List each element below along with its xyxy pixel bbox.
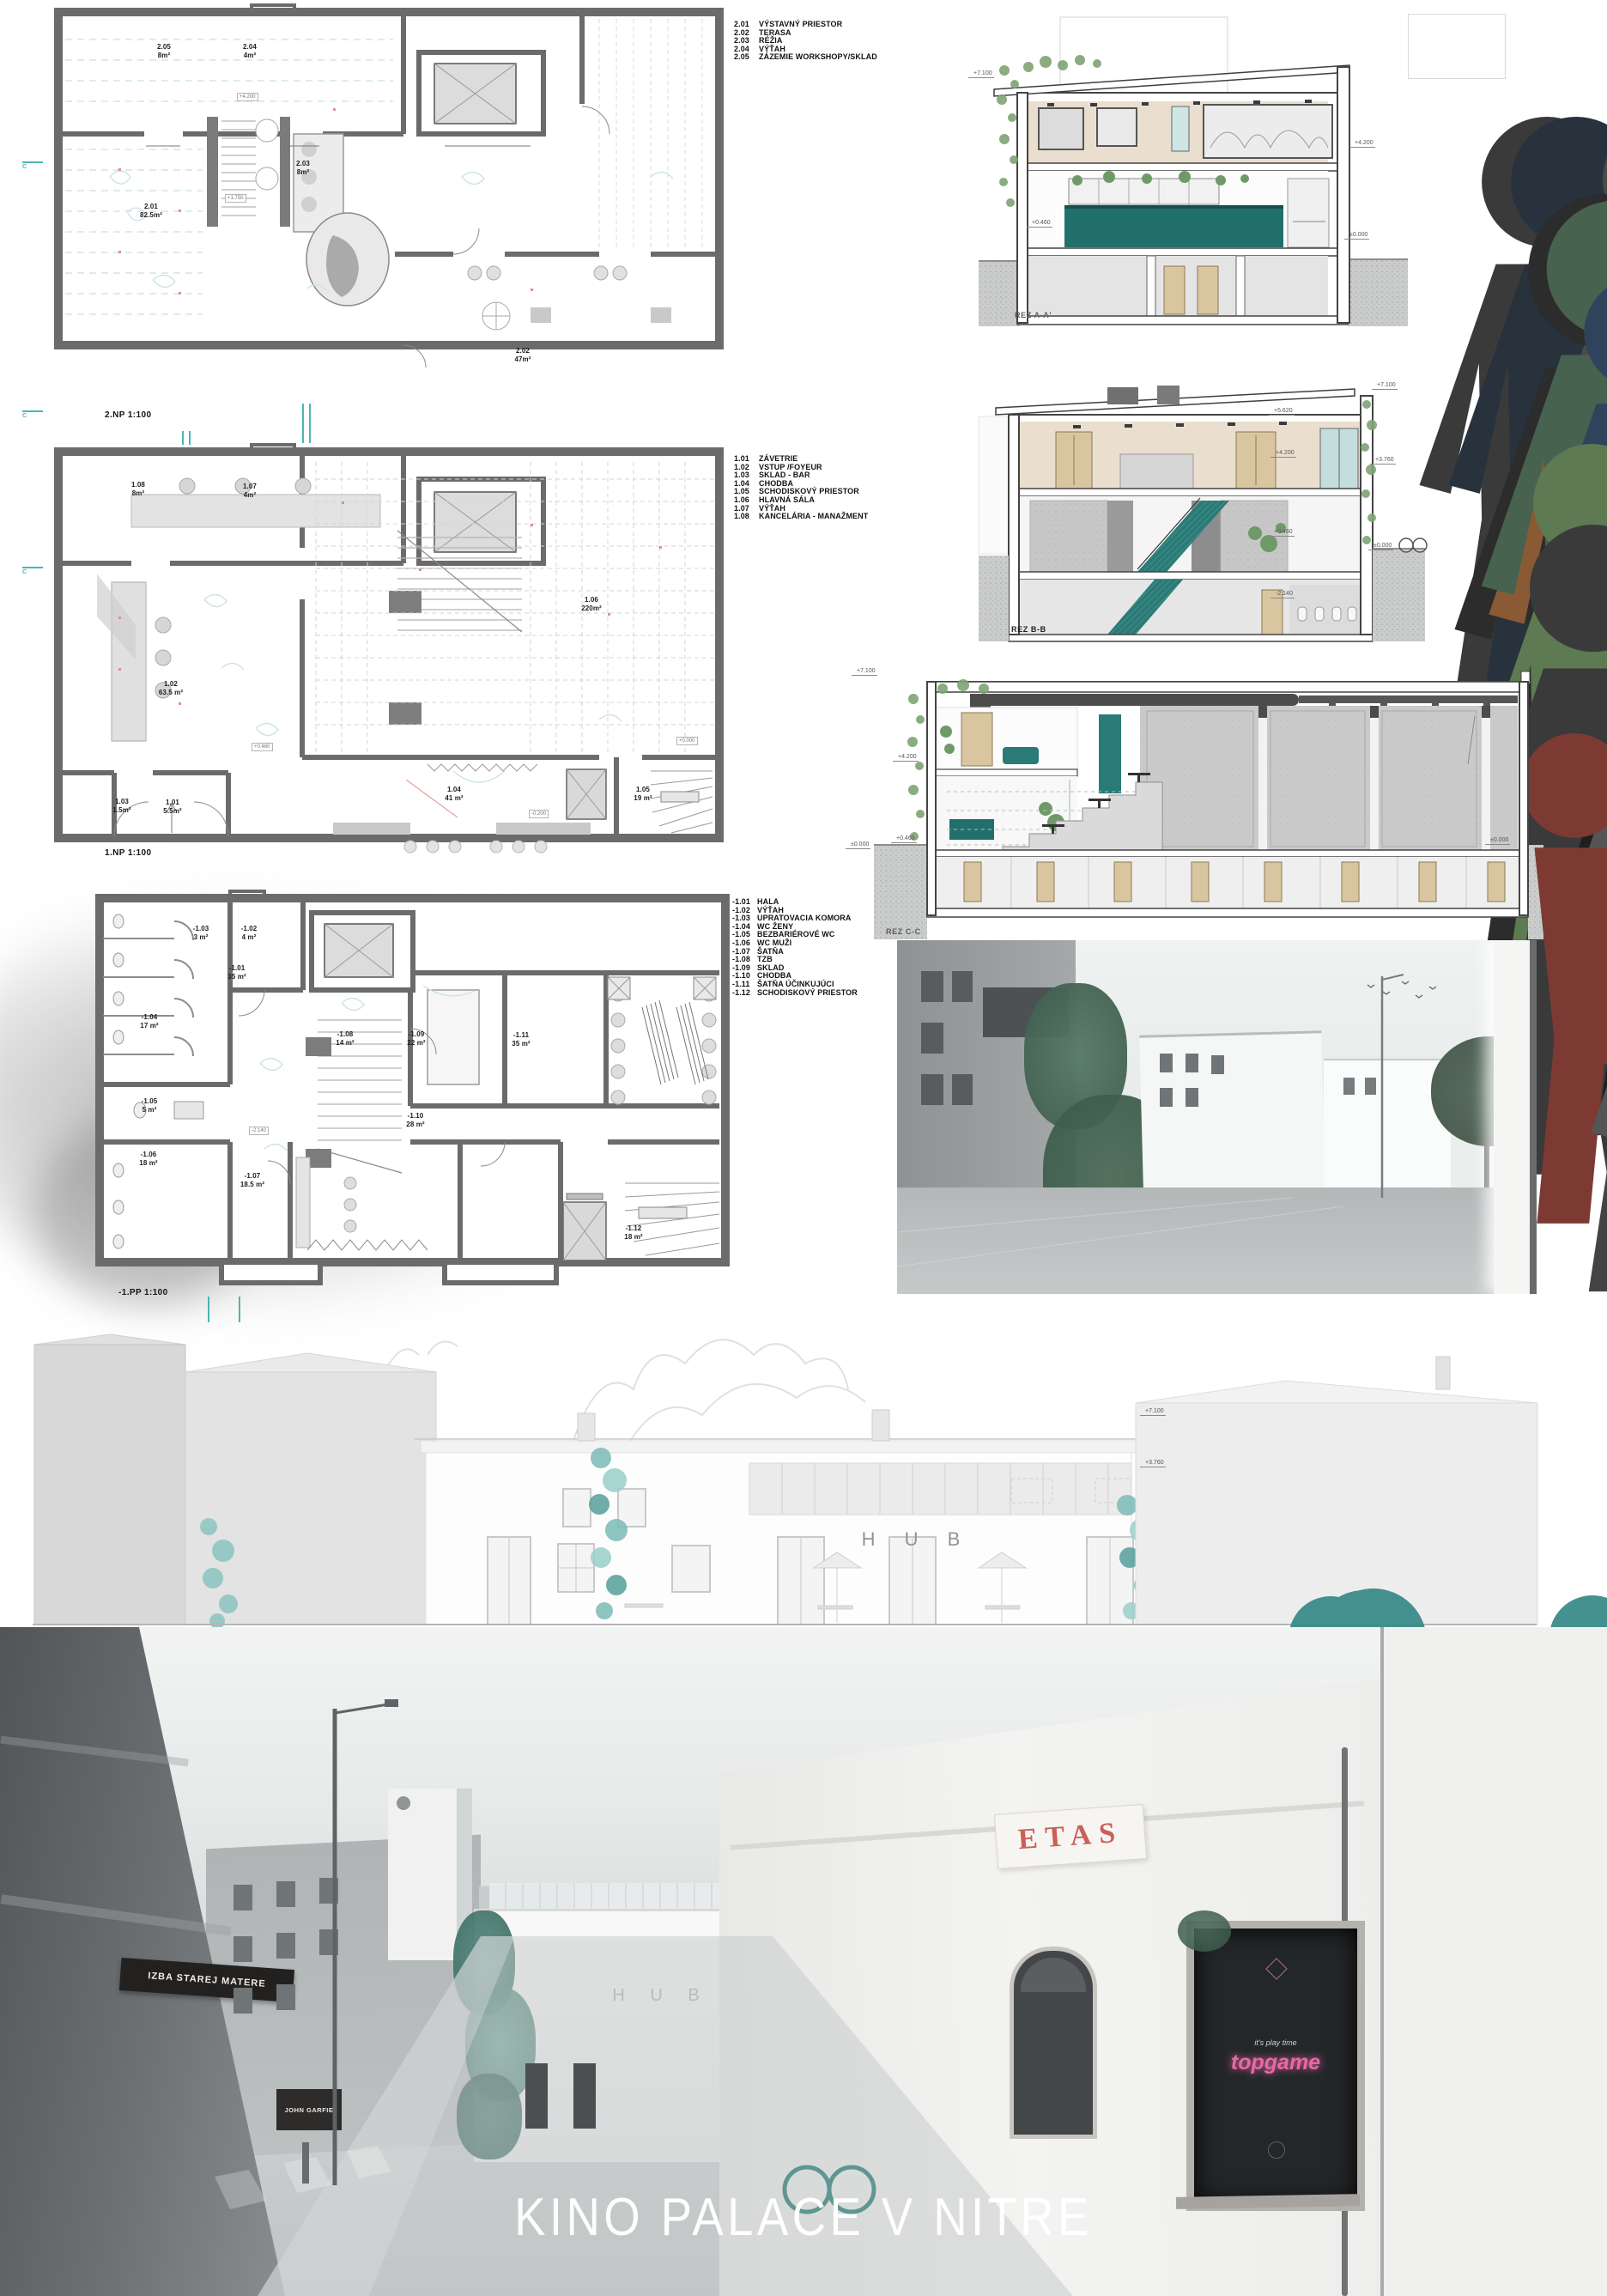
slab bbox=[1009, 572, 1373, 580]
foundation-slab bbox=[1009, 635, 1373, 641]
gable bbox=[34, 1334, 185, 1345]
legend-label: VÝŤAH bbox=[757, 906, 784, 914]
bollards bbox=[404, 841, 547, 853]
legend-label: TZB bbox=[757, 955, 773, 963]
level-mark: -0.200 bbox=[529, 810, 549, 818]
legend-row: 2.01VÝSTAVNÝ PRIESTOR bbox=[734, 21, 877, 29]
level-mark: +7.100 bbox=[852, 668, 877, 676]
chimney bbox=[872, 1410, 889, 1441]
column bbox=[256, 167, 278, 190]
legend-row: 2.02TERASA bbox=[734, 29, 877, 38]
legend-label: BEZBARIÉROVÉ WC bbox=[757, 930, 835, 938]
glass-band bbox=[749, 1463, 1131, 1515]
cut-line bbox=[189, 431, 191, 445]
left-wall bbox=[1017, 93, 1028, 323]
gable bbox=[1136, 1381, 1537, 1403]
teal-sofa bbox=[1003, 747, 1039, 764]
level-mark: +0.460 bbox=[891, 835, 917, 843]
section-cut-marker: C bbox=[22, 410, 43, 419]
street-elevation bbox=[24, 1321, 1537, 1640]
gray-building-b bbox=[185, 1372, 436, 1625]
room-label: 2.0247m² bbox=[498, 347, 548, 363]
wood-door bbox=[1164, 266, 1185, 314]
room-label: -1.1135 m² bbox=[496, 1031, 546, 1048]
roof bbox=[994, 65, 1349, 96]
level-mark: +0.000 bbox=[676, 737, 698, 745]
ground bbox=[979, 261, 1020, 326]
slab bbox=[927, 850, 1528, 857]
curb-lines bbox=[897, 1198, 1343, 1266]
room-label: 1.0441 m² bbox=[429, 786, 479, 802]
roof-slab bbox=[927, 682, 1528, 692]
legend-row: -1.09SKLAD bbox=[732, 964, 858, 973]
street-ground bbox=[1373, 549, 1425, 641]
room-label: 2.044m² bbox=[225, 43, 275, 59]
legend-row: -1.03UPRATOVACIA KOMORA bbox=[732, 914, 858, 923]
level-mark: +4.200 bbox=[1349, 140, 1375, 148]
legend-row: 1.03SKLAD - BAR bbox=[734, 471, 868, 480]
legend-label: SCHODISKOVÝ PRIESTOR bbox=[759, 487, 859, 495]
legend-row: -1.07ŠATŇA bbox=[732, 948, 858, 957]
legend-label: ŠATŇA bbox=[757, 947, 784, 956]
level-mark: +0.460 bbox=[1027, 220, 1052, 228]
artwork bbox=[1097, 108, 1137, 146]
basement-wall bbox=[1147, 256, 1155, 316]
context-building-outline bbox=[1408, 14, 1506, 79]
cut-line bbox=[309, 404, 311, 443]
row-windows bbox=[233, 1878, 338, 2014]
right-wall bbox=[1519, 682, 1528, 915]
level-mark: +0.460 bbox=[1269, 529, 1295, 537]
gray-building-a bbox=[34, 1345, 185, 1625]
legend-label: WC MUŽI bbox=[757, 938, 791, 947]
ground bbox=[1348, 259, 1408, 326]
legend-label: SKLAD - BAR bbox=[759, 471, 810, 479]
legend-row: -1.01HALA bbox=[732, 898, 858, 907]
satellite-dish bbox=[397, 1796, 410, 1810]
level-mark: -2.140 bbox=[1270, 591, 1295, 598]
room-label: 2.058m² bbox=[139, 43, 189, 59]
second-elevator-icon bbox=[567, 769, 606, 819]
plan-2np-scale-label: 2.NP 1:100 bbox=[105, 410, 151, 420]
chimney bbox=[1436, 1357, 1450, 1389]
legend-row: 2.03RÉŽIA bbox=[734, 37, 877, 46]
room-label: -1.0618 m² bbox=[124, 1151, 173, 1167]
artwork-large bbox=[1204, 105, 1332, 158]
legend-row: 1.06HLAVNÁ SÁLA bbox=[734, 496, 868, 505]
window bbox=[1172, 106, 1189, 151]
duct-thin bbox=[1299, 695, 1518, 703]
elevator-icon bbox=[312, 913, 413, 990]
photo-overlay bbox=[897, 940, 1537, 1294]
level-mark: +7.100 bbox=[968, 70, 994, 78]
legend-label: ŠATŇA ÚČINKUJÚCI bbox=[757, 980, 834, 988]
section-b-label: REZ B-B bbox=[1011, 625, 1046, 634]
room-label: -1.0922 m² bbox=[391, 1030, 441, 1047]
bar-top bbox=[1064, 205, 1283, 209]
legend-num: 1.08 bbox=[734, 513, 759, 521]
elevator-icon bbox=[419, 479, 543, 563]
office-nook bbox=[1288, 179, 1329, 247]
basement-wall bbox=[1236, 256, 1245, 316]
legend-label: KANCELÁRIA - MANAŽMENT bbox=[759, 512, 868, 520]
dog bbox=[1306, 1615, 1321, 1624]
level-mark: ±0.000 bbox=[846, 841, 870, 849]
room-label: 1.06220m² bbox=[567, 596, 616, 612]
stair-pier bbox=[389, 591, 421, 613]
column bbox=[256, 119, 278, 142]
section-b bbox=[979, 365, 1425, 641]
bollard bbox=[302, 2142, 309, 2184]
room-label: -1.055 m² bbox=[124, 1097, 174, 1114]
plan-1pp-scale-label: -1.PP 1:100 bbox=[118, 1288, 168, 1297]
birds bbox=[1367, 981, 1436, 998]
chimney bbox=[578, 1413, 595, 1441]
wood-door bbox=[1198, 266, 1218, 314]
street-render-photo bbox=[897, 940, 1537, 1294]
level-mark: +7.100 bbox=[1372, 382, 1398, 390]
legend-2np: 2.01VÝSTAVNÝ PRIESTOR2.02TERASA2.03RÉŽIA… bbox=[734, 21, 877, 62]
room-label: -1.033 m² bbox=[176, 925, 226, 941]
level-mark: ±0.000 bbox=[1368, 543, 1393, 550]
legend-label: ZÁVETRIE bbox=[759, 454, 797, 463]
room-label: 1.031.5m² bbox=[97, 798, 147, 814]
legend-1np: 1.01ZÁVETRIE1.02VSTUP /FOYEUR1.03SKLAD -… bbox=[734, 455, 868, 521]
slab bbox=[1009, 489, 1373, 496]
room-label: 1.0519 m² bbox=[618, 786, 668, 802]
bar-front bbox=[1064, 209, 1283, 247]
room-label: -1.0417 m² bbox=[124, 1013, 174, 1030]
cornice bbox=[421, 1441, 1138, 1453]
legend-label: HALA bbox=[757, 897, 779, 906]
gray-building-right bbox=[1136, 1403, 1537, 1625]
cut-line bbox=[182, 431, 184, 445]
chimney bbox=[1107, 387, 1138, 404]
left-wall bbox=[927, 682, 936, 915]
wood-panel bbox=[961, 713, 992, 766]
background-trees bbox=[385, 1339, 865, 1449]
ground bbox=[979, 556, 1009, 641]
room-label: -1.1028 m² bbox=[391, 1112, 440, 1128]
legend-label: VSTUP /FOYEUR bbox=[759, 463, 822, 471]
cut-line bbox=[239, 1297, 240, 1322]
legend-label: UPRATOVACIA KOMORA bbox=[757, 914, 851, 922]
level-mark: +5.620 bbox=[1269, 408, 1295, 416]
stair-wall bbox=[207, 117, 218, 227]
level-mark: +4.200 bbox=[893, 754, 919, 762]
second-elevator-icon bbox=[563, 1194, 606, 1260]
legend-label: RÉŽIA bbox=[759, 36, 783, 45]
room-label: 2.0182.5m² bbox=[126, 203, 176, 219]
concrete-wall bbox=[1030, 501, 1107, 572]
section-cut-marker: C bbox=[22, 567, 43, 575]
hub-door bbox=[573, 2063, 596, 2129]
foundation-slab bbox=[927, 908, 1528, 917]
basement-corridor bbox=[936, 857, 1528, 908]
room-label: -1.0135 m² bbox=[212, 964, 262, 981]
level-mark: -2.140 bbox=[249, 1127, 269, 1135]
ground bbox=[874, 845, 927, 939]
artwork bbox=[1039, 108, 1083, 149]
project-title: KINO PALACE V NITRE bbox=[96, 2187, 1510, 2248]
right-wall bbox=[1337, 67, 1349, 323]
lamp-head bbox=[385, 1699, 398, 1707]
slab bbox=[1017, 163, 1348, 171]
foundation-slab bbox=[1017, 316, 1348, 325]
gable bbox=[185, 1353, 436, 1372]
counter bbox=[1120, 454, 1193, 489]
legend-row: 1.08KANCELÁRIA - MANAŽMENT bbox=[734, 513, 868, 521]
section-c-label: REZ C-C bbox=[886, 927, 921, 936]
legend-label: ZÁZEMIE WORKSHOPY/SKLAD bbox=[759, 52, 877, 61]
legend-label: HLAVNÁ SÁLA bbox=[759, 495, 815, 504]
legend-label: SCHODISKOVÝ PRIESTOR bbox=[757, 988, 858, 997]
legend-row: -1.08TZB bbox=[732, 956, 858, 964]
room-label: -1.024 m² bbox=[224, 925, 274, 941]
poster: 2.058m² 2.044m² 2.038m² 2.0182.5m² 2.024… bbox=[0, 0, 1607, 2296]
hub-door bbox=[525, 2063, 548, 2129]
legend-label: SKLAD bbox=[757, 963, 785, 972]
section-a-label: REZ A-A' bbox=[1015, 311, 1052, 319]
legend-row: -1.12SCHODISKOVÝ PRIESTOR bbox=[732, 989, 858, 998]
cut-line bbox=[302, 404, 304, 443]
level-mark: +4.200 bbox=[237, 93, 258, 101]
level-mark: +3.760 bbox=[1370, 457, 1396, 465]
context bbox=[979, 416, 1009, 554]
legend-1pp: -1.01HALA-1.02VÝŤAH-1.03UPRATOVACIA KOMO… bbox=[732, 898, 858, 997]
level-mark: +1.750 bbox=[225, 194, 246, 203]
legend-label: CHODBA bbox=[757, 971, 791, 980]
legend-label: VÝSTAVNÝ PRIESTOR bbox=[759, 20, 842, 28]
level-mark: ±0.000 bbox=[1344, 232, 1369, 240]
legend-row: 2.05ZÁZEMIE WORKSHOPY/SKLAD bbox=[734, 53, 877, 62]
section-cut-marker: C bbox=[22, 161, 43, 170]
room-label: 1.088m² bbox=[113, 481, 163, 497]
legend-num: 2.05 bbox=[734, 53, 759, 62]
legend-label: VÝŤAH bbox=[759, 45, 785, 53]
elevator-icon bbox=[419, 52, 543, 134]
level-mark: +3.760 bbox=[1140, 1460, 1166, 1467]
legend-label: WC ŽENY bbox=[757, 922, 793, 931]
far-windows bbox=[1160, 1054, 1376, 1107]
chimney bbox=[1157, 386, 1179, 404]
hub-facade-sign: H U B bbox=[848, 1528, 985, 1551]
level-mark: ±0.000 bbox=[1485, 837, 1510, 845]
legend-row: -1.06WC MUŽI bbox=[732, 939, 858, 948]
section-a bbox=[979, 17, 1408, 326]
legend-row: -1.05BEZBARIÉROVÉ WC bbox=[732, 931, 858, 939]
teal-stair-wall bbox=[1099, 714, 1121, 793]
level-mark: +7.100 bbox=[1140, 1408, 1166, 1416]
room-label: 1.074m² bbox=[225, 483, 275, 499]
room-label: -1.0814 m² bbox=[320, 1030, 370, 1047]
room-label: 1.0263.5 m² bbox=[146, 680, 196, 696]
windows bbox=[921, 971, 973, 1105]
stair-pier bbox=[389, 702, 421, 725]
slab bbox=[1017, 248, 1348, 256]
section-c bbox=[874, 663, 1543, 939]
level-mark: +4.200 bbox=[1270, 450, 1296, 458]
dark-panel bbox=[1107, 501, 1133, 572]
room-label: 2.038m² bbox=[278, 160, 328, 176]
slab bbox=[936, 769, 1077, 776]
plan-1np-scale-label: 1.NP 1:100 bbox=[105, 848, 151, 858]
main-render: H U B ETAS it's play time topgame IZBA S… bbox=[0, 1627, 1607, 2296]
room-label: 1.015.5m² bbox=[148, 799, 197, 815]
room-label: -1.0718.5 m² bbox=[227, 1172, 277, 1188]
duct bbox=[981, 694, 1299, 706]
legend-num: -1.12 bbox=[732, 989, 757, 998]
room-label: -1.1218 m² bbox=[609, 1224, 658, 1241]
cut-line bbox=[208, 1297, 209, 1322]
left-wall bbox=[1009, 415, 1019, 635]
level-mark: +0.460 bbox=[252, 743, 273, 751]
